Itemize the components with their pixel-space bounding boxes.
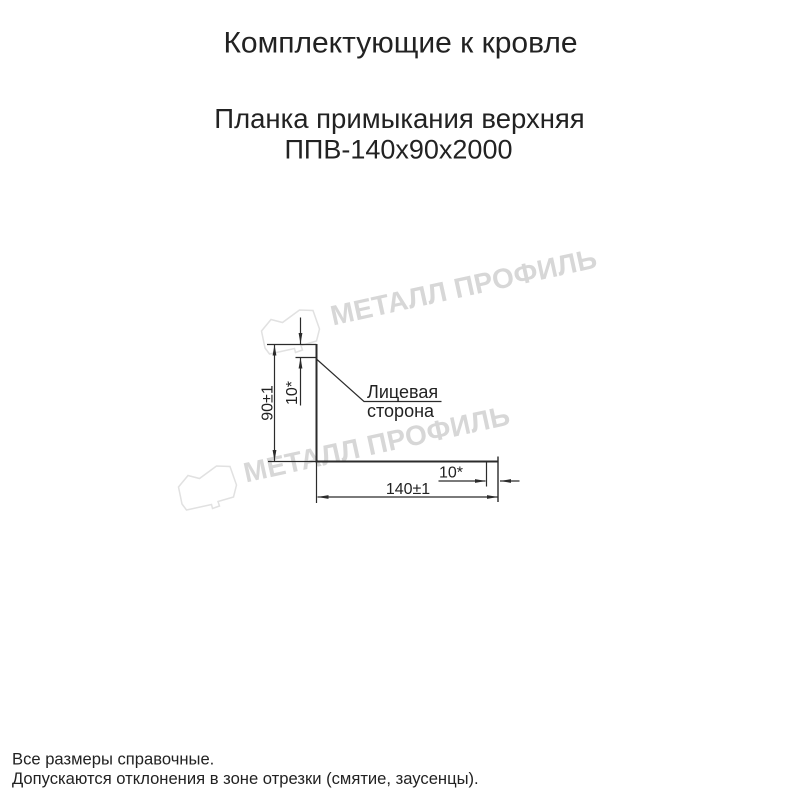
svg-text:140±1: 140±1 (386, 481, 430, 498)
svg-text:Лицевая: Лицевая (367, 382, 438, 402)
svg-text:Все размеры справочные.: Все размеры справочные. (12, 750, 214, 769)
svg-text:Комплектующие к кровле: Комплектующие к кровле (223, 26, 577, 59)
svg-text:90±1: 90±1 (260, 385, 277, 421)
svg-text:сторона: сторона (367, 401, 435, 421)
svg-text:МЕТАЛЛ ПРОФИЛЬ: МЕТАЛЛ ПРОФИЛЬ (328, 243, 600, 332)
svg-text:10*: 10* (284, 381, 301, 405)
svg-text:Допускаются отклонения в зоне: Допускаются отклонения в зоне отрезки (с… (12, 769, 479, 788)
svg-text:Планка примыкания верхняя: Планка примыкания верхняя (214, 103, 584, 134)
svg-text:10*: 10* (439, 465, 463, 482)
svg-text:ППВ-140х90х2000: ППВ-140х90х2000 (285, 135, 513, 165)
